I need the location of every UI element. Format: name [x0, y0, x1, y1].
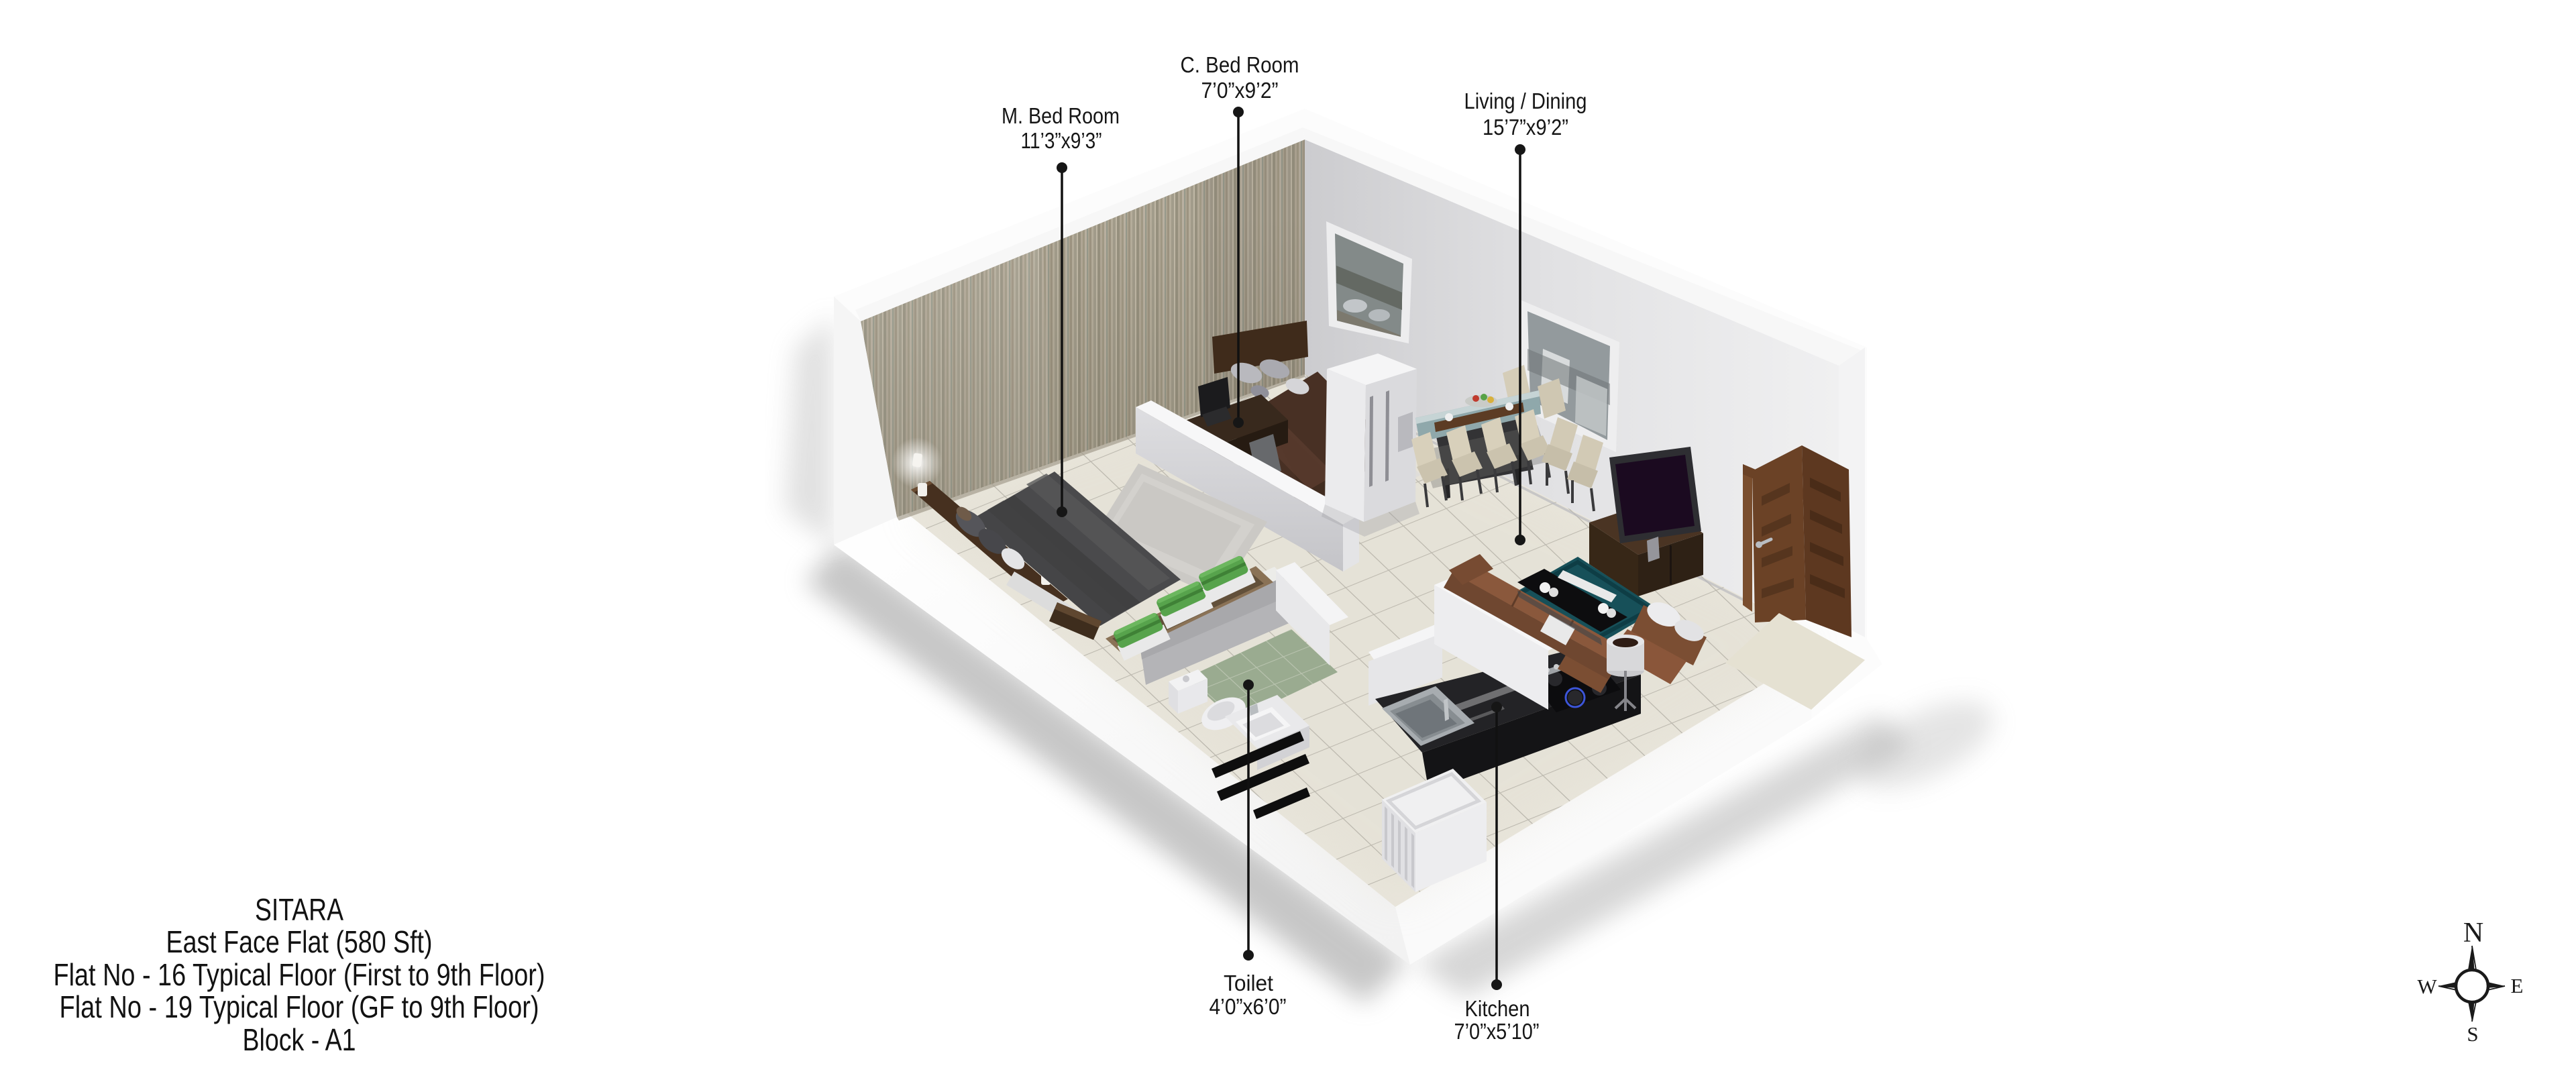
svg-text:11’3”x9’3”: 11’3”x9’3” [1021, 128, 1102, 153]
svg-text:Block - A1: Block - A1 [243, 1022, 356, 1057]
svg-text:4’0”x6’0”: 4’0”x6’0” [1210, 994, 1287, 1019]
svg-text:E: E [2511, 974, 2524, 997]
svg-text:M. Bed Room: M. Bed Room [1002, 103, 1120, 128]
svg-text:7’0”x5’10”: 7’0”x5’10” [1454, 1019, 1540, 1044]
svg-text:Kitchen: Kitchen [1465, 996, 1530, 1021]
svg-text:C. Bed Room: C. Bed Room [1181, 52, 1299, 77]
svg-text:S: S [2467, 1022, 2478, 1046]
svg-text:Flat No - 19 Typical Floor (GF: Flat No - 19 Typical Floor (GF to 9th Fl… [60, 989, 539, 1024]
svg-text:N: N [2463, 918, 2483, 948]
svg-text:SITARA: SITARA [255, 892, 343, 927]
svg-text:15’7”x9’2”: 15’7”x9’2” [1483, 115, 1568, 140]
svg-text:Living / Dining: Living / Dining [1464, 89, 1587, 113]
svg-text:Toilet: Toilet [1224, 971, 1273, 995]
svg-text:East Face Flat (580 Sft): East Face Flat (580 Sft) [166, 924, 433, 959]
svg-text:7’0”x9’2”: 7’0”x9’2” [1201, 78, 1279, 103]
svg-text:W: W [2417, 975, 2437, 998]
svg-text:Flat No - 16 Typical Floor (Fi: Flat No - 16 Typical Floor (First to 9th… [54, 957, 545, 992]
